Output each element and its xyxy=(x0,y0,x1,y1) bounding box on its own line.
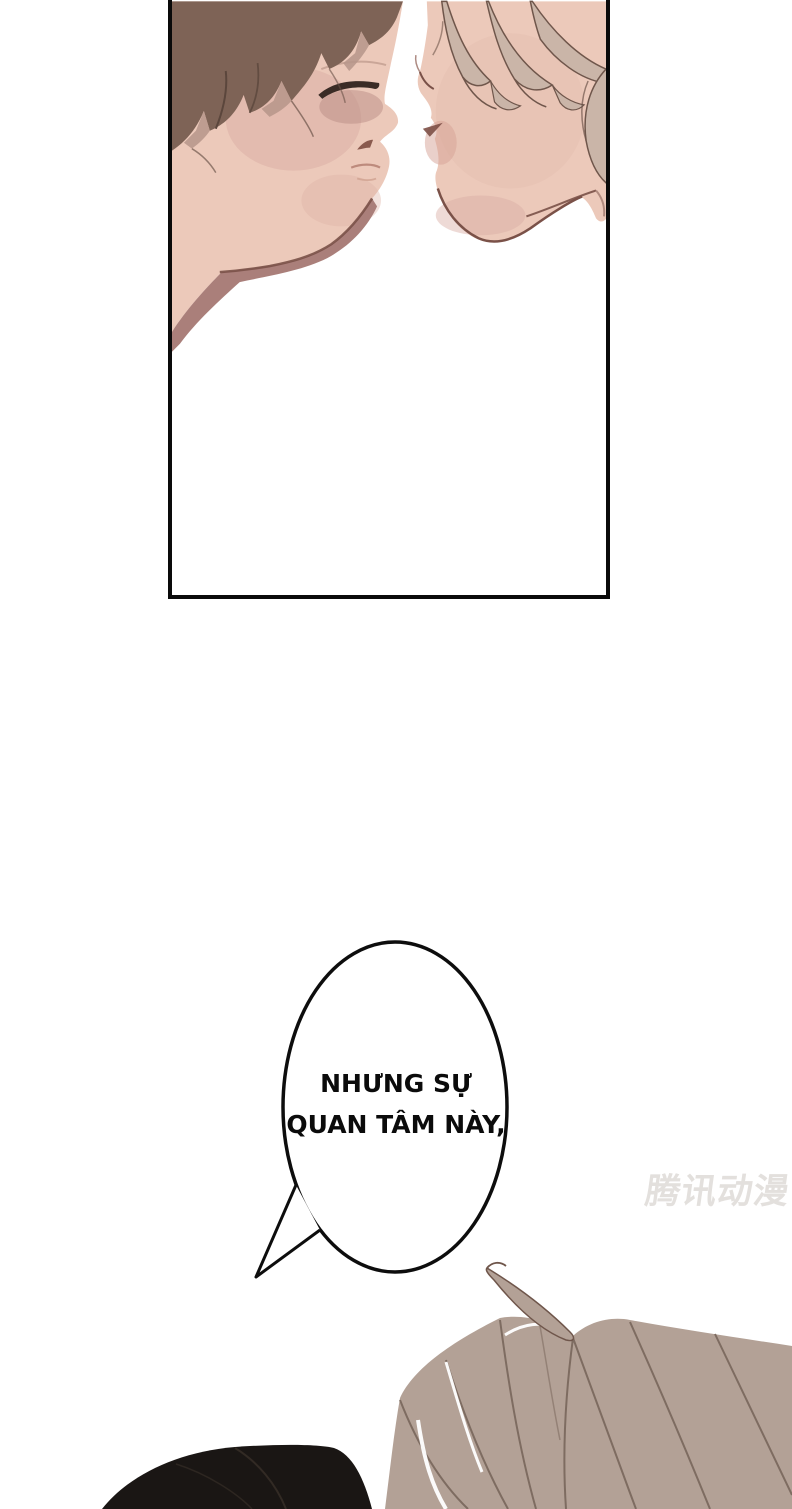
taupe-hair xyxy=(385,1317,792,1509)
right-chin-shading xyxy=(436,195,526,235)
dialogue-line-2: QUAN TÂM NÀY, xyxy=(280,1104,512,1145)
dialogue-line-1: NHƯNG SỰ xyxy=(280,1063,512,1104)
watermark-tencent-comics: 腾讯动漫 xyxy=(636,1163,792,1214)
bottom-illustration xyxy=(0,1260,792,1509)
right-nose-bridge xyxy=(416,55,420,72)
left-eyelid-shadow xyxy=(319,90,383,124)
taupe-hair-character xyxy=(385,1263,792,1509)
black-hair xyxy=(102,1445,372,1509)
kiss-panel xyxy=(168,0,610,599)
left-character xyxy=(172,1,403,351)
dialogue-text: NHƯNG SỰ QUAN TÂM NÀY, xyxy=(280,1063,512,1145)
right-character xyxy=(416,1,608,242)
black-hair-character xyxy=(102,1445,372,1509)
ahoge-hook xyxy=(487,1263,506,1268)
comic-page: NHƯNG SỰ QUAN TÂM NÀY, 腾讯动漫 xyxy=(0,0,792,1509)
kiss-panel-illustration xyxy=(172,0,608,595)
